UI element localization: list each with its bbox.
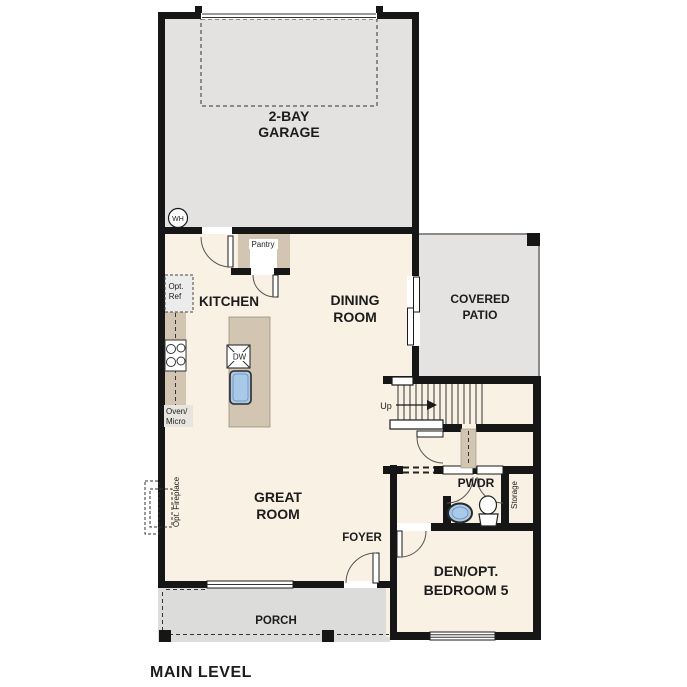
patio-column bbox=[527, 233, 540, 246]
label-dining-line1: DINING bbox=[331, 292, 380, 308]
stair-railing-top bbox=[392, 377, 413, 385]
porch-post bbox=[159, 630, 171, 642]
label-patio-line1: COVERED bbox=[450, 292, 510, 306]
label-opt-ref-line2: Ref bbox=[169, 292, 182, 301]
cooktop bbox=[165, 340, 186, 371]
plan-title: MAIN LEVEL bbox=[150, 664, 252, 681]
label-oven-line2: Micro bbox=[166, 417, 186, 426]
label-dining-line2: ROOM bbox=[333, 309, 377, 325]
label-opt-fireplace: Opt. Fireplace bbox=[172, 476, 181, 527]
floor-plan-drawing: 2-BAY GARAGE KITCHEN DINING ROOM COVERED… bbox=[0, 0, 687, 687]
front-door-opening bbox=[344, 581, 377, 588]
den-door-opening bbox=[397, 523, 431, 531]
label-den-line1: DEN/OPT. bbox=[434, 563, 499, 579]
label-garage-line1: 2-BAY bbox=[269, 108, 310, 124]
label-foyer: FOYER bbox=[342, 532, 382, 544]
label-up: Up bbox=[380, 401, 392, 411]
label-pwdr: PWDR bbox=[458, 476, 495, 490]
room-covered-patio bbox=[419, 233, 540, 381]
stair-railing-bottom bbox=[390, 420, 443, 429]
label-pantry: Pantry bbox=[251, 240, 274, 249]
label-patio-line2: PATIO bbox=[463, 308, 498, 322]
room-fills bbox=[158, 13, 540, 642]
powder-sink bbox=[448, 504, 472, 523]
label-great-line1: GREAT bbox=[254, 489, 302, 505]
garage-entry-opening bbox=[202, 227, 232, 234]
label-oven-line1: Oven/ bbox=[166, 407, 188, 416]
garage-door bbox=[195, 6, 383, 19]
label-dishwasher: DW bbox=[233, 353, 247, 362]
window-den bbox=[430, 632, 495, 640]
label-great-line2: ROOM bbox=[256, 506, 300, 522]
sliding-glass-door bbox=[407, 276, 420, 346]
window-great-room bbox=[207, 581, 293, 588]
label-kitchen: KITCHEN bbox=[199, 294, 259, 309]
kitchen-sink bbox=[230, 371, 251, 404]
label-porch: PORCH bbox=[255, 615, 297, 627]
label-den-line2: BEDROOM 5 bbox=[424, 582, 509, 598]
label-garage-line2: GARAGE bbox=[258, 124, 319, 140]
storage-divider bbox=[461, 429, 476, 468]
floor-plan-page: 2-BAY GARAGE KITCHEN DINING ROOM COVERED… bbox=[0, 0, 687, 687]
porch-post bbox=[322, 630, 334, 642]
label-storage: Storage bbox=[510, 480, 519, 509]
label-opt-ref-line1: Opt. bbox=[168, 282, 183, 291]
label-water-heater: WH bbox=[172, 216, 184, 223]
